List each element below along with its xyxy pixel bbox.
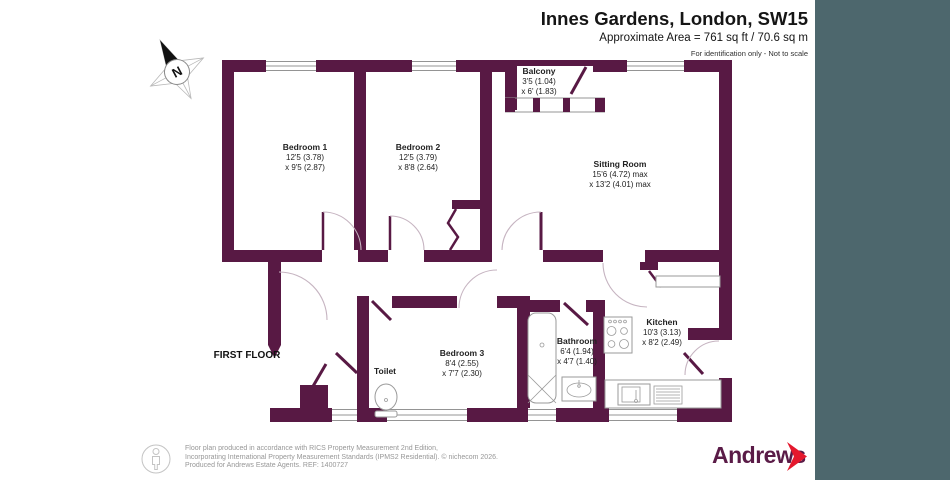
window-bedroom3 xyxy=(387,410,467,421)
bathroom-sink-icon xyxy=(562,377,596,401)
room-dim: 8'4 (2.55) xyxy=(412,359,512,370)
room-dim: x 6' (1.83) xyxy=(489,87,589,98)
room-dim: 3'5 (1.04) xyxy=(489,77,589,88)
window-bedroom1 xyxy=(266,62,316,71)
andrews-chevron-icon xyxy=(768,441,808,473)
footer-disclaimer-line3: Produced for Andrews Estate Agents. REF:… xyxy=(185,462,348,469)
floor-label: FIRST FLOOR xyxy=(197,350,297,361)
room-label-sitting-room: Sitting Room 15'6 (4.72) max x 13'2 (4.0… xyxy=(570,159,670,191)
room-dim: 10'3 (3.13) xyxy=(612,328,712,339)
room-dim: x 4'7 (1.40) xyxy=(527,357,627,368)
window-bedroom2 xyxy=(412,62,456,71)
room-label-kitchen: Kitchen 10'3 (3.13) x 8'2 (2.49) xyxy=(612,317,712,349)
balcony-balustrade xyxy=(505,98,605,112)
toilet-icon xyxy=(375,384,397,417)
door-entry xyxy=(279,272,357,400)
room-dim: x 8'8 (2.64) xyxy=(368,163,468,174)
room-dim: x 7'7 (2.30) xyxy=(412,369,512,380)
door-toilet xyxy=(372,301,391,320)
room-dim: 15'6 (4.72) max xyxy=(570,170,670,181)
window-kitchen xyxy=(609,410,677,421)
door-bathroom xyxy=(564,303,588,325)
room-dim: x 13'2 (4.01) max xyxy=(570,180,670,191)
room-name: Bedroom 3 xyxy=(412,348,512,359)
room-label-balcony: Balcony 3'5 (1.04) x 6' (1.83) xyxy=(489,66,589,98)
floorplan-drawing: N xyxy=(0,0,950,480)
window-sitting-room xyxy=(627,62,684,71)
room-name: Kitchen xyxy=(612,317,712,328)
footer-disclaimer-line2: Incorporating International Property Mea… xyxy=(185,454,498,461)
surveyor-icon xyxy=(142,445,170,473)
room-dim: 12'5 (3.79) xyxy=(368,153,468,164)
room-label-bedroom1: Bedroom 1 12'5 (3.78) x 9'5 (2.87) xyxy=(255,142,355,174)
room-name: Bedroom 2 xyxy=(368,142,468,153)
window-bathroom xyxy=(528,410,556,421)
room-name: Bedroom 1 xyxy=(255,142,355,153)
room-dim: x 8'2 (2.49) xyxy=(612,338,712,349)
room-label-bedroom2: Bedroom 2 12'5 (3.79) x 8'8 (2.64) xyxy=(368,142,468,174)
room-name: Balcony xyxy=(489,66,589,77)
door-bedroom2 xyxy=(390,216,424,250)
window-toilet xyxy=(332,410,357,421)
door-bedroom3 xyxy=(459,270,497,308)
room-dim: 12'5 (3.78) xyxy=(255,153,355,164)
room-label-toilet: Toilet xyxy=(345,366,425,377)
door-sitting-room xyxy=(502,212,541,250)
room-dim: x 9'5 (2.87) xyxy=(255,163,355,174)
door-kitchen xyxy=(603,262,661,307)
room-name: Sitting Room xyxy=(570,159,670,170)
floorplan-page: Innes Gardens, London, SW15 Approximate … xyxy=(0,0,950,480)
room-name: Toilet xyxy=(345,366,425,377)
footer-disclaimer-line1: Floor plan produced in accordance with R… xyxy=(185,445,438,452)
compass-icon: N xyxy=(134,26,218,112)
room-label-bedroom3: Bedroom 3 8'4 (2.55) x 7'7 (2.30) xyxy=(412,348,512,380)
